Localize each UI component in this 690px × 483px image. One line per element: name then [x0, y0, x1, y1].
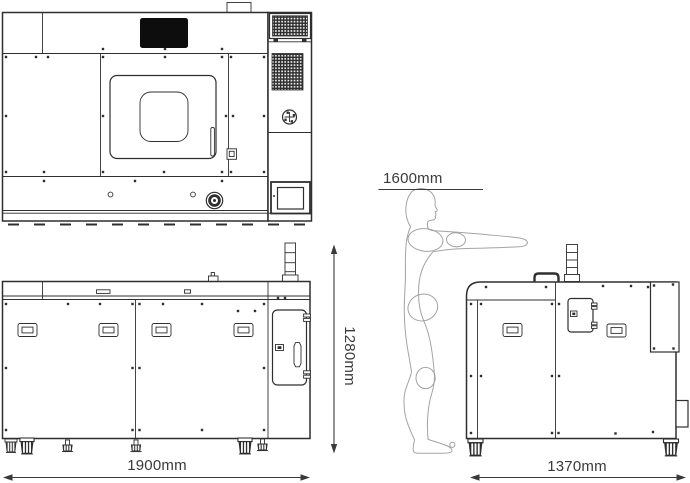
emergency-stop-icon — [206, 192, 222, 208]
dim-front-width: 1900mm — [3, 457, 310, 481]
door-latch-icon — [227, 149, 237, 160]
leveling-foot-icon — [62, 440, 73, 452]
knee-joint — [416, 367, 435, 388]
arrow-up-icon — [331, 245, 337, 255]
vent-grille-side-icon — [272, 54, 303, 91]
caster-icon — [5, 439, 17, 453]
dim-person-height: 1600mm — [379, 170, 484, 190]
door-latch-icon — [276, 345, 284, 351]
arrow-right-icon — [677, 474, 687, 480]
dim-side-depth: 1370mm — [470, 458, 686, 481]
arrow-down-icon — [331, 444, 337, 454]
rotary-knob-icon — [283, 110, 297, 124]
rear-outlet-box — [676, 401, 688, 428]
dimension-diagram-page: 1600mm 1280mm 1900mm 1370mm — [0, 0, 690, 483]
dim-machine-height: 1280mm — [331, 245, 358, 454]
arrow-right-icon — [301, 474, 311, 480]
elbow-joint — [446, 232, 466, 247]
roof-vent — [209, 273, 219, 282]
arrow-left-icon — [3, 474, 13, 480]
caster-icon — [20, 438, 34, 454]
side-cabinet-body — [467, 282, 677, 439]
person-height-label: 1600mm — [383, 170, 443, 187]
machine-height-label: 1280mm — [341, 326, 358, 386]
caster-icon — [664, 439, 679, 456]
feet — [468, 439, 679, 456]
leveling-foot-icon — [257, 439, 268, 451]
caster-icon — [468, 439, 483, 456]
dimension-diagram: 1600mm 1280mm 1900mm 1370mm — [0, 0, 690, 483]
rear-view — [3, 243, 311, 454]
side-depth-label: 1370mm — [547, 458, 607, 475]
control-screen — [140, 18, 188, 48]
side-rear-panel — [651, 282, 680, 352]
front-width-label: 1900mm — [127, 457, 187, 474]
front-view — [3, 3, 312, 225]
touchscreen-icon — [271, 182, 310, 214]
side-view — [467, 245, 689, 456]
door-latch-icon — [571, 311, 578, 317]
roof-duct — [227, 3, 251, 13]
leveling-foot-icon — [130, 440, 141, 452]
vent-grille-top-icon — [268, 14, 312, 42]
arrow-left-icon — [470, 474, 480, 480]
feet — [5, 438, 268, 454]
lift-handle-icon — [535, 274, 559, 282]
signal-tower-icon — [565, 245, 580, 282]
caster-icon — [238, 438, 252, 454]
signal-tower-icon — [283, 243, 299, 282]
toe-joint — [450, 442, 455, 447]
